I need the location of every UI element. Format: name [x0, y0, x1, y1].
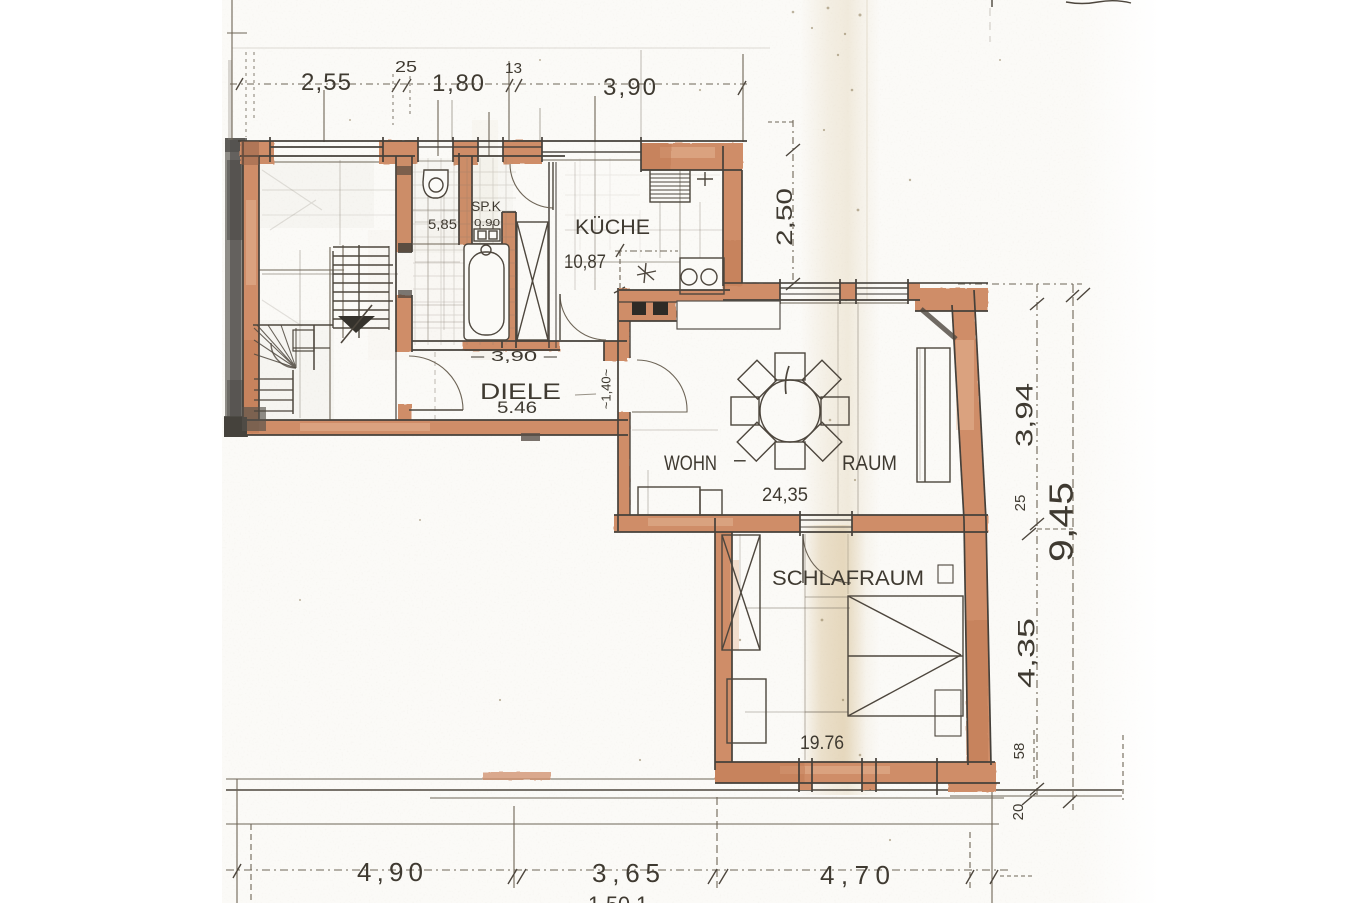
- svg-text:9,45: 9,45: [1043, 482, 1080, 562]
- svg-text:19.76: 19.76: [800, 733, 844, 754]
- svg-text:RAUM: RAUM: [842, 452, 897, 475]
- svg-text:0.90: 0.90: [474, 217, 500, 229]
- svg-text:–: –: [734, 448, 746, 471]
- svg-text:1,50 1: 1,50 1: [588, 892, 648, 903]
- svg-text:~1,40~: ~1,40~: [598, 368, 613, 409]
- svg-text:58: 58: [1011, 743, 1028, 760]
- svg-text:3,94: 3,94: [1011, 383, 1038, 447]
- svg-text:25: 25: [395, 59, 417, 76]
- svg-text:2,55: 2,55: [301, 69, 351, 96]
- svg-text:10,87: 10,87: [564, 252, 606, 273]
- svg-text:4,90: 4,90: [357, 857, 423, 887]
- svg-text:20: 20: [1010, 804, 1027, 821]
- svg-text:13: 13: [505, 60, 522, 77]
- svg-text:4,35: 4,35: [1013, 618, 1040, 688]
- svg-text:5.46: 5.46: [497, 398, 537, 417]
- svg-text:24,35: 24,35: [762, 485, 808, 506]
- svg-text:SP.K: SP.K: [471, 199, 501, 214]
- svg-text:KÜCHE: KÜCHE: [575, 216, 650, 239]
- svg-text:1,80: 1,80: [432, 70, 484, 97]
- svg-text:5,85: 5,85: [428, 216, 457, 232]
- svg-text:3,65: 3,65: [592, 858, 660, 888]
- svg-text:4,70: 4,70: [820, 860, 890, 890]
- svg-text:3,90: 3,90: [603, 74, 656, 101]
- svg-text:– 3,90 –: – 3,90 –: [471, 348, 558, 365]
- svg-text:SCHLAFRAUM: SCHLAFRAUM: [772, 567, 924, 590]
- svg-text:WOHN: WOHN: [664, 452, 717, 475]
- svg-text:25: 25: [1012, 495, 1029, 512]
- svg-text:2,50: 2,50: [772, 188, 797, 246]
